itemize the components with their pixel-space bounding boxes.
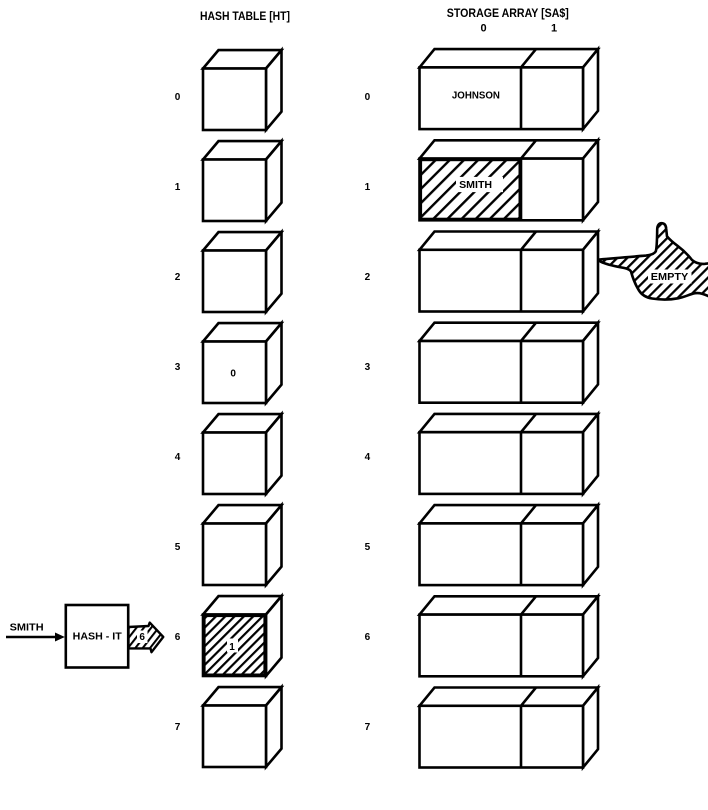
svg-text:2: 2 (365, 272, 371, 283)
svg-text:HASH - IT: HASH - IT (73, 631, 122, 642)
svg-text:0: 0 (480, 23, 486, 35)
svg-text:1: 1 (229, 642, 235, 653)
svg-text:HASH TABLE [HT]: HASH TABLE [HT] (200, 9, 290, 23)
svg-text:1: 1 (365, 182, 371, 193)
svg-text:3: 3 (175, 362, 181, 373)
svg-text:0: 0 (230, 369, 236, 380)
svg-text:STORAGE ARRAY [SA$]: STORAGE ARRAY [SA$] (447, 6, 569, 20)
svg-text:EMPTY: EMPTY (651, 272, 689, 283)
svg-text:3: 3 (365, 362, 371, 373)
svg-text:SMITH: SMITH (10, 622, 44, 633)
svg-text:4: 4 (175, 452, 181, 463)
svg-text:7: 7 (175, 722, 181, 733)
svg-text:0: 0 (175, 92, 181, 103)
svg-text:5: 5 (175, 542, 181, 553)
svg-text:JOHNSON: JOHNSON (452, 91, 500, 102)
svg-text:2: 2 (175, 272, 181, 283)
svg-text:4: 4 (365, 452, 371, 463)
svg-text:6: 6 (139, 632, 145, 643)
svg-text:6: 6 (175, 632, 181, 643)
svg-text:1: 1 (551, 23, 557, 35)
svg-text:SMITH: SMITH (459, 180, 492, 191)
svg-text:6: 6 (365, 632, 371, 643)
svg-text:7: 7 (365, 722, 371, 733)
svg-text:0: 0 (365, 92, 371, 103)
svg-text:1: 1 (175, 182, 181, 193)
svg-text:5: 5 (365, 542, 371, 553)
